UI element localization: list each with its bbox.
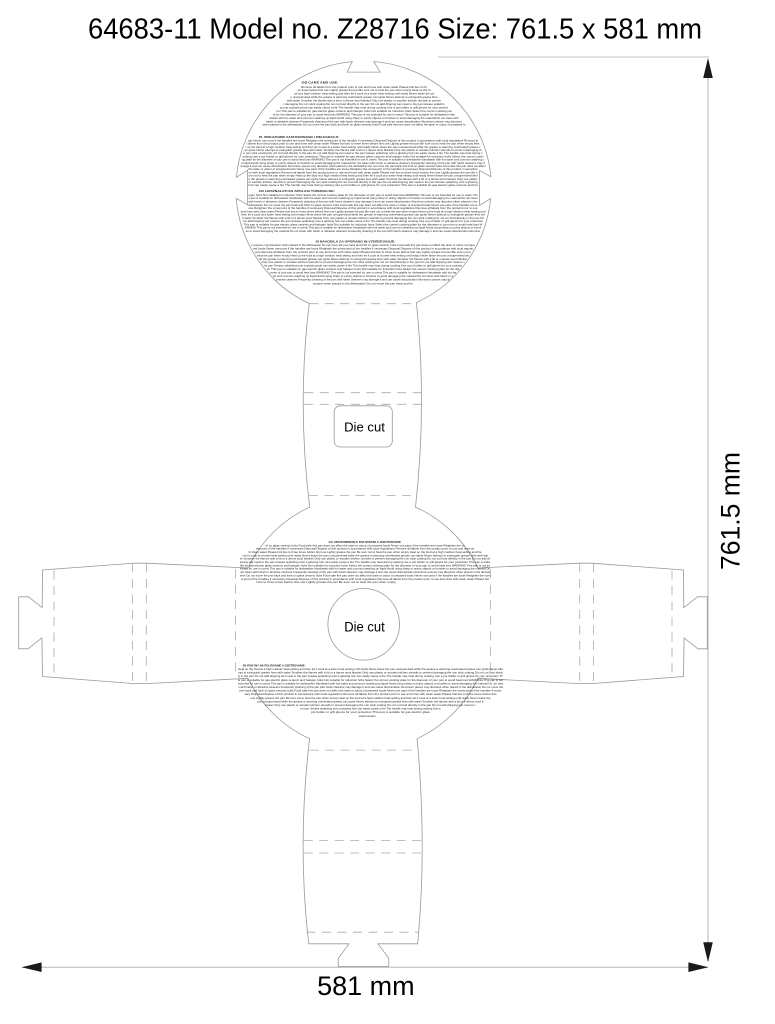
svg-text:HU HASZNALATI ES APOLASI TUDNI: HU HASZNALATI ES APOLASI TUDNIVALOK:: [259, 189, 335, 193]
svg-text:es to avoid damaging the mater: es to avoid damaging the material Do not…: [246, 229, 481, 233]
svg-text:with water Smother the flames: with water Smother the flames with a lid…: [287, 99, 442, 103]
svg-text:dwash with hot water and commo: dwash with hot water and common washing …: [270, 116, 460, 120]
svg-text:t damaging the non stick coati: t damaging the non stick coating Do not …: [284, 102, 446, 106]
svg-text:pan back and forth on glass ce: pan back and forth on glass ceramic hobs…: [240, 689, 503, 693]
svg-text:ile the grease is warming over: ile the grease is warming overheated gre…: [259, 257, 467, 261]
svg-text:Remove all labels from the pro: Remove all labels from the product prior…: [301, 85, 427, 89]
svg-text:g onto a glowing hob can easil: g onto a glowing hob can easily cause a …: [280, 105, 448, 109]
svg-text:l two to three times before fi: l two to three times before first use Li…: [256, 580, 397, 584]
svg-text:ions Remove all labels from th: ions Remove all labels from the product …: [255, 250, 472, 254]
svg-text:ustanoveniami.: ustanoveniami.: [359, 714, 377, 718]
svg-text:n with harsh or abrasive clean: n with harsh or abrasive cleaners Freque…: [238, 685, 504, 689]
svg-text:harsh or abrasive cleaners Fre: harsh or abrasive cleaners Frequently cl…: [266, 119, 462, 123]
svg-text:he pan Grease splashing onto a: he pan Grease splashing onto a glowing h…: [264, 264, 462, 268]
svg-text:scolour when placed in the dis: scolour when placed in the dishwasher Do…: [313, 282, 413, 286]
svg-text:ter and common washing up liqu: ter and common washing up liquid Avoid u…: [273, 274, 454, 278]
svg-text:Heat up the food at a high med: Heat up the food at a high medium heat s…: [238, 667, 504, 671]
svg-text:761.5 mm: 761.5 mm: [716, 452, 746, 570]
svg-text:is pan is suitable for gas ele: is pan is suitable for gas electric glas…: [238, 678, 503, 682]
svg-text:red foods Never use pans if th: red foods Never use pans if the handles …: [253, 246, 473, 250]
svg-text:pot holder or grill gloves for: pot holder or grill gloves for your prot…: [311, 710, 431, 714]
svg-text:on This pan is suitable for ga: on This pan is suitable for gas electric…: [267, 267, 460, 271]
svg-text:sary Disposal Dispose of this: sary Disposal Dispose of this product in…: [245, 692, 497, 696]
svg-text:brasive cleaners Frequently cl: brasive cleaners Frequently cleaning of …: [276, 277, 450, 281]
svg-text:Die cut: Die cut: [344, 618, 385, 634]
svg-text:te for the diameter of your pa: te for the diameter of your pan to avoid…: [273, 112, 456, 116]
svg-text:intended for use in ovens This: intended for use in ovens This pan is su…: [238, 681, 504, 685]
svg-text:heat the pan when empty Heat u: heat the pan when empty Heat up the food…: [257, 253, 470, 257]
svg-text:he pan Grease splashing onto a: he pan Grease splashing onto a glowing h…: [301, 707, 442, 711]
svg-text:GB CARE AND USE:: GB CARE AND USE:: [302, 80, 339, 84]
svg-text:ion This pan is suitable for g: ion This pan is suitable for gas electri…: [277, 109, 453, 113]
svg-text:ly in the pan Do not add dripp: ly in the pan Do not add dripping wet me…: [238, 674, 504, 678]
svg-text:meter of your pan to avoid hea: meter of your pan to avoid heat loss WAR…: [270, 271, 457, 275]
svg-text:when placed in the dishwasher: when placed in the dishwasher Do not mov…: [263, 123, 467, 127]
svg-text:ee times before first use Ligh: ee times before first use Lightly grease…: [298, 88, 432, 92]
svg-text:od at a high medium heat setti: od at a high medium heat setting and the…: [294, 92, 435, 96]
svg-text:mpt to extinguish grease fires: mpt to extinguish grease fires with wate…: [238, 671, 503, 675]
svg-text:hob can easily cause a fire Th: hob can easily cause a fire The handle m…: [249, 183, 478, 187]
svg-text:m pieces may discolour when pl: m pieces may discolour when placed in th…: [251, 243, 475, 247]
svg-text:lanket Only use plastic or woo: lanket Only use plastic or wooden kitche…: [266, 703, 476, 707]
svg-text:581 mm: 581 mm: [317, 971, 415, 1001]
svg-text:Only use plastic or wooden kit: Only use plastic or wooden kitchen utens…: [262, 260, 465, 264]
svg-text:n unsupervised while the greas: n unsupervised while the grease is warmi…: [291, 95, 439, 99]
svg-text:64683-11 Model no. Z28716 Size: 64683-11 Model no. Z28716 Size: 761.5 x …: [88, 14, 702, 46]
svg-text:use Lightly grease the pan Be: use Lightly grease the pan Be sure not t…: [251, 696, 492, 700]
svg-text:Die cut: Die cut: [344, 420, 385, 435]
svg-text:pan unsupervised while the gre: pan unsupervised while the grease is war…: [258, 699, 485, 703]
